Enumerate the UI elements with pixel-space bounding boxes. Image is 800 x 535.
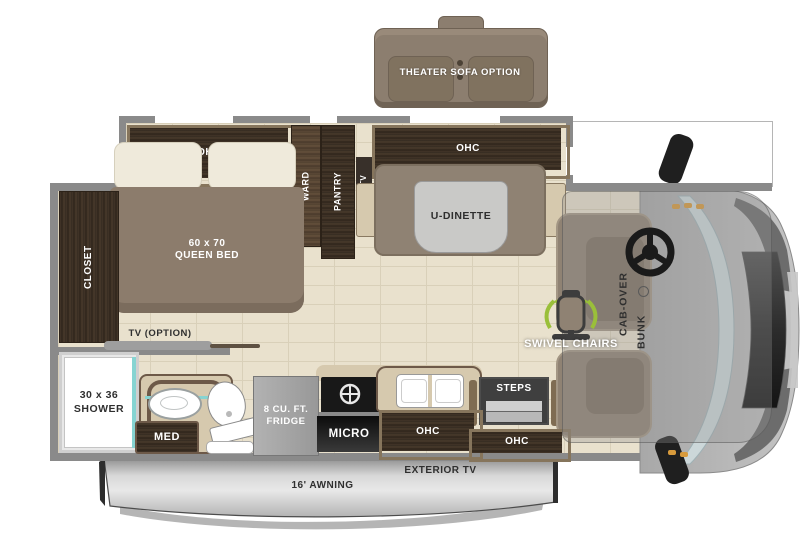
stove (321, 377, 379, 413)
bed-type-label: QUEEN BED (175, 250, 239, 263)
closet-label: CLOSET (60, 192, 118, 342)
u-dinette-table: U-DINETTE (414, 181, 508, 253)
kitchen-ohc-cabinet: OHC (379, 410, 483, 460)
burner-icon (321, 377, 379, 413)
bunk-vent-icon (638, 286, 649, 297)
med-label: MED (137, 423, 197, 452)
theater-sofa-label: THEATER SOFA OPTION (374, 66, 546, 80)
pantry-label: PANTRY (322, 126, 354, 258)
kitchen-ohc-label: OHC (382, 413, 474, 451)
entry-ohc-cabinet: OHC (469, 429, 571, 462)
pantry-cabinet: PANTRY (321, 125, 355, 259)
bed-pillows (114, 142, 296, 190)
theater-sofa: THEATER SOFA OPTION (374, 16, 546, 108)
tv-option-mount (104, 341, 212, 350)
kitchen-sink (396, 374, 464, 408)
floorplan-canvas: 16' AWNING EXTERIOR TV (0, 0, 800, 535)
window-gap (310, 116, 337, 123)
fridge-label-line1: 8 CU. FT. (264, 404, 309, 416)
queen-bed: 60 x 70 QUEEN BED (110, 187, 304, 313)
swivel-chairs-label: SWIVEL CHAIRS (513, 338, 629, 352)
awning-endcap-right (553, 458, 558, 503)
steps-label: STEPS (481, 379, 547, 399)
med-cabinet: MED (135, 421, 199, 454)
entry-steps: STEPS (479, 377, 549, 425)
awning-endcap-left (99, 458, 105, 506)
shower-label: SHOWER (74, 403, 124, 416)
window-gap (410, 116, 500, 123)
shower-size-label: 30 x 36 (80, 389, 119, 402)
bath-mat (206, 441, 254, 454)
exterior-tv-label: EXTERIOR TV (393, 465, 488, 478)
micro-label: MICRO (317, 416, 381, 452)
bed-size-label: 60 x 70 (189, 238, 226, 251)
u-dinette-label: U-DINETTE (415, 182, 507, 252)
window-gap (155, 116, 233, 123)
sink-counter (376, 366, 482, 412)
swivel-chair-icon (542, 288, 600, 342)
tv-option-label: TV (OPTION) (105, 328, 215, 340)
shower: 30 x 36 SHOWER (59, 352, 139, 453)
fridge: 8 CU. FT. FRIDGE (253, 376, 319, 456)
awning-label: 16' AWNING (275, 480, 370, 493)
cab-over-label-line2: BUNK (634, 300, 650, 364)
wall-left (50, 183, 58, 461)
sink-icon (148, 388, 202, 420)
wall-top-right (566, 183, 772, 191)
side-mirror-top-icon (656, 131, 696, 186)
closet: CLOSET (59, 191, 119, 343)
microwave: MICRO (317, 416, 381, 452)
fridge-label-line2: FRIDGE (267, 416, 306, 428)
entry-ohc-label: OHC (472, 432, 562, 453)
tv-option-arm (210, 344, 260, 348)
